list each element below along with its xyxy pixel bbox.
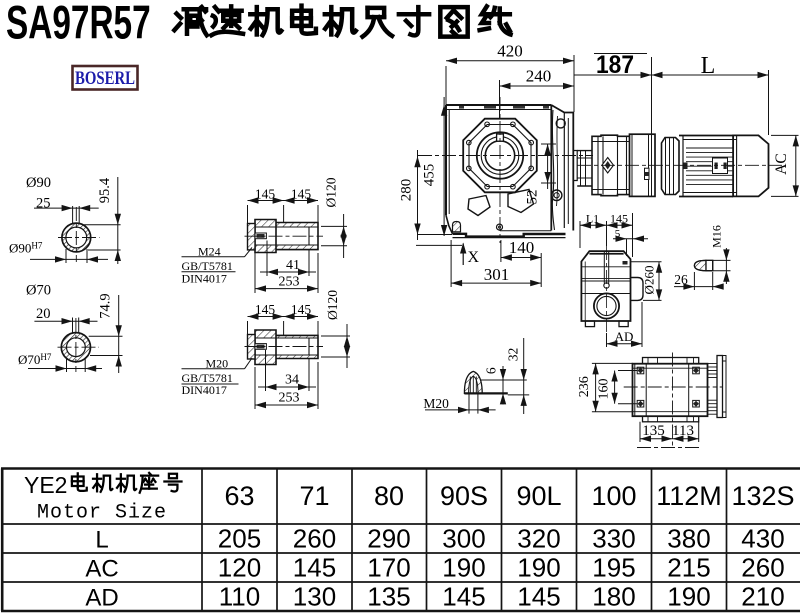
svg-text:90L: 90L [516, 481, 561, 511]
svg-text:260: 260 [293, 524, 336, 554]
svg-text:330: 330 [592, 524, 635, 554]
svg-text:112M: 112M [656, 481, 722, 511]
svg-text:380: 380 [667, 524, 710, 554]
svg-text:253: 253 [279, 274, 300, 289]
svg-text:180: 180 [592, 582, 635, 612]
svg-text:M16: M16 [710, 225, 724, 248]
svg-text:26: 26 [674, 272, 688, 287]
svg-text:455: 455 [422, 164, 438, 187]
svg-text:90S: 90S [440, 481, 488, 511]
svg-text:34: 34 [285, 373, 299, 388]
svg-text:320: 320 [517, 524, 560, 554]
svg-text:110: 110 [219, 582, 260, 612]
svg-text:25: 25 [36, 196, 51, 212]
svg-text:420: 420 [497, 42, 523, 61]
svg-text:190: 190 [517, 553, 560, 583]
svg-text:BOSERL: BOSERL [75, 69, 135, 89]
svg-text:74.9: 74.9 [98, 293, 114, 318]
svg-text:145: 145 [255, 302, 276, 317]
svg-text:120: 120 [218, 553, 261, 583]
svg-text:Ø120: Ø120 [324, 177, 339, 207]
svg-text:240: 240 [526, 67, 552, 86]
svg-text:301: 301 [484, 265, 510, 284]
svg-text:145: 145 [291, 302, 312, 317]
svg-text:M20: M20 [423, 396, 449, 411]
svg-text:DIN4017: DIN4017 [182, 383, 227, 397]
svg-text:Ø90: Ø90 [26, 175, 51, 191]
svg-text:187: 187 [596, 51, 634, 79]
svg-text:135: 135 [642, 423, 665, 439]
svg-text:95.4: 95.4 [97, 177, 113, 203]
svg-text:190: 190 [667, 582, 710, 612]
svg-text:SA97R57: SA97R57 [6, 0, 151, 49]
svg-text:280: 280 [399, 179, 415, 202]
svg-text:DIN4017: DIN4017 [182, 271, 227, 285]
svg-text:71: 71 [299, 481, 329, 511]
svg-text:AD: AD [615, 329, 634, 344]
svg-text:300: 300 [442, 524, 485, 554]
svg-text:Ø120: Ø120 [325, 290, 340, 320]
svg-text:Ø260: Ø260 [642, 266, 657, 295]
svg-text:253: 253 [279, 391, 300, 406]
svg-text:YE2: YE2 [24, 472, 67, 498]
svg-text:AC: AC [773, 153, 790, 175]
svg-text:6: 6 [484, 367, 499, 374]
svg-text:L: L [95, 527, 108, 554]
svg-text:X: X [468, 249, 480, 266]
svg-text:210: 210 [741, 582, 784, 612]
svg-text:205: 205 [218, 524, 261, 554]
svg-text:L1: L1 [586, 212, 599, 226]
svg-text:20: 20 [36, 306, 51, 322]
svg-text:195: 195 [592, 553, 635, 583]
svg-text:145: 145 [293, 553, 336, 583]
svg-text:L: L [701, 53, 716, 79]
svg-text:63: 63 [224, 481, 254, 511]
svg-text:260: 260 [741, 553, 784, 583]
svg-text:32: 32 [506, 348, 521, 362]
svg-text:215: 215 [667, 553, 710, 583]
svg-text:Motor Size: Motor Size [37, 502, 167, 525]
svg-text:430: 430 [741, 524, 784, 554]
svg-text:113: 113 [672, 423, 694, 439]
svg-text:41: 41 [286, 258, 300, 273]
svg-text:52: 52 [525, 190, 541, 205]
svg-text:236: 236 [577, 376, 592, 397]
svg-text:160: 160 [596, 379, 611, 400]
svg-text:Ø70: Ø70 [26, 283, 51, 299]
svg-text:AC: AC [85, 556, 118, 583]
svg-text:130: 130 [293, 582, 336, 612]
svg-text:145: 145 [442, 582, 485, 612]
svg-text:100: 100 [591, 481, 636, 511]
svg-text:135: 135 [367, 582, 410, 612]
svg-text:145: 145 [255, 187, 276, 202]
svg-text:145: 145 [291, 187, 312, 202]
svg-text:145: 145 [610, 212, 628, 226]
svg-text:AD: AD [85, 585, 118, 612]
svg-text:140: 140 [509, 238, 535, 257]
svg-text:145: 145 [517, 582, 560, 612]
svg-text:290: 290 [367, 524, 410, 554]
svg-text:170: 170 [367, 553, 410, 583]
svg-text:80: 80 [374, 481, 404, 511]
svg-text:132S: 132S [731, 481, 794, 511]
svg-text:190: 190 [442, 553, 485, 583]
